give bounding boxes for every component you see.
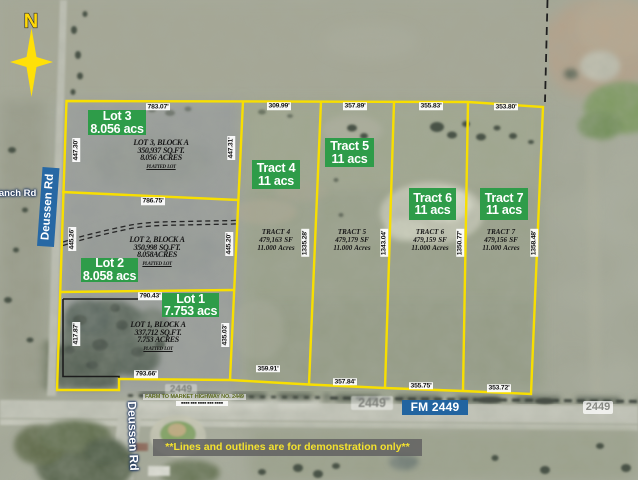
svg-text:N: N (24, 11, 38, 33)
